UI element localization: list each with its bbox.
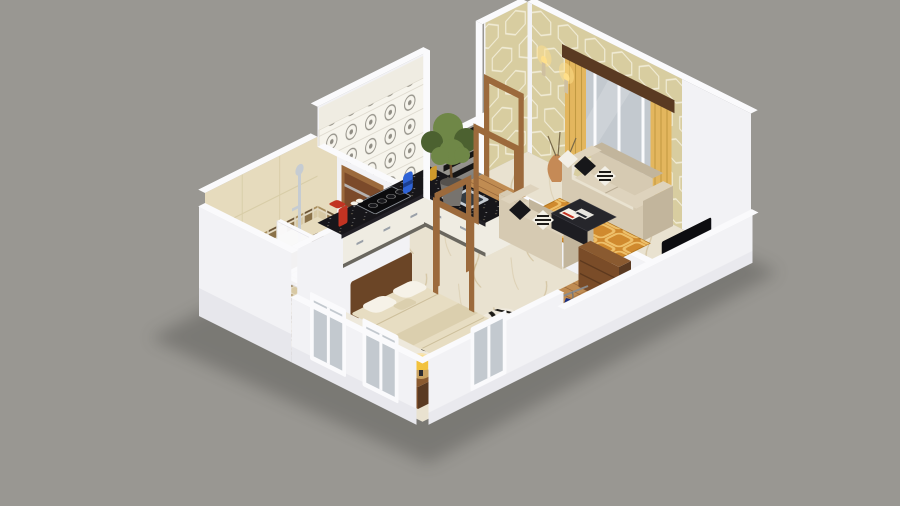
floorplan-canvas bbox=[0, 0, 900, 506]
floorplan-render bbox=[0, 0, 900, 506]
wall-end-cap bbox=[423, 47, 430, 200]
